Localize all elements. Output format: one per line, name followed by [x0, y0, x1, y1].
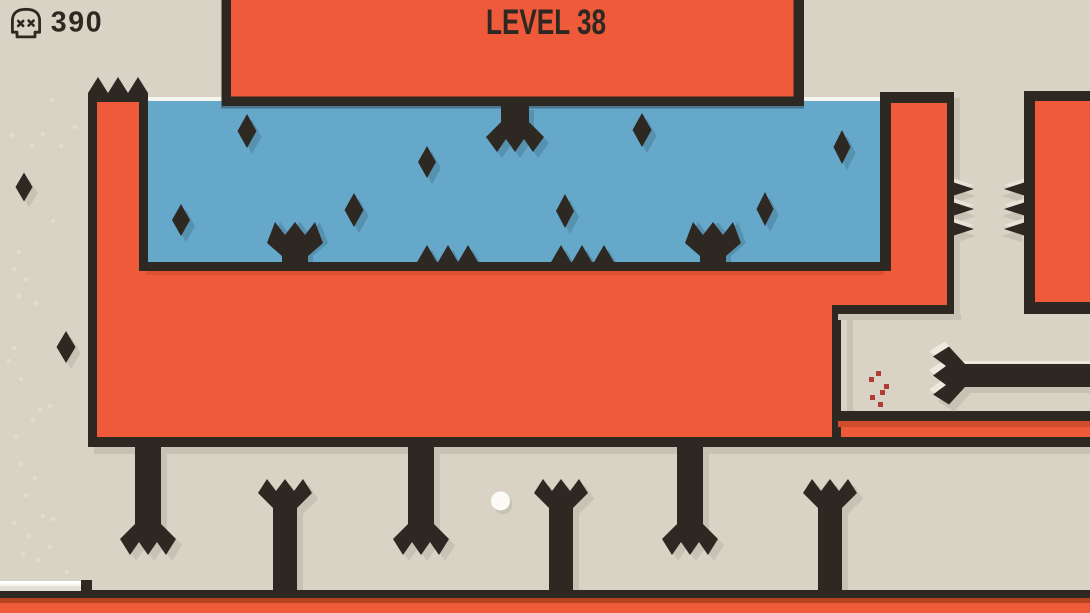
svg-text:LEVEL 38: LEVEL 38 — [486, 2, 606, 42]
svg-text:390: 390 — [51, 6, 103, 38]
